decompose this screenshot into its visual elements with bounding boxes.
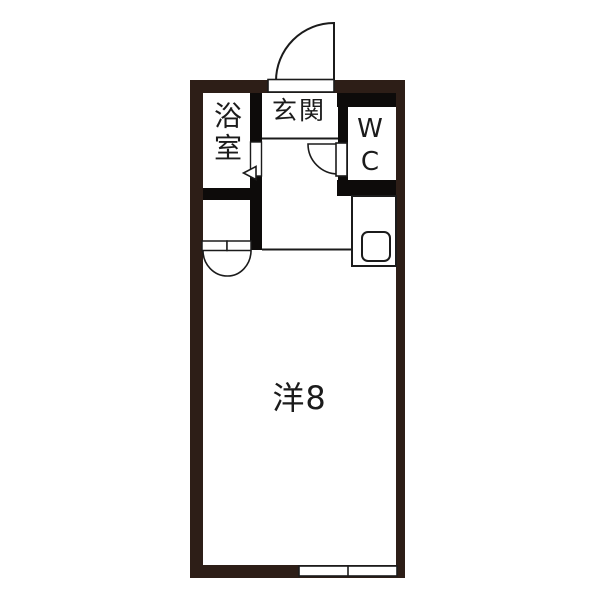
closet-wall-right xyxy=(250,200,262,250)
kitchen-sink xyxy=(362,232,390,261)
closet-door-swing-right xyxy=(228,251,252,277)
main-room-label: 洋8 xyxy=(203,382,396,414)
entrance-label: 玄関 xyxy=(260,98,338,123)
closet-door-swing-left xyxy=(203,251,228,277)
entrance-threshold xyxy=(268,80,334,93)
entrance-door-swing xyxy=(276,23,334,81)
floor-plan: 浴室 玄関 WC 洋8 xyxy=(0,0,600,600)
wc-door-swing xyxy=(308,144,338,174)
wc-door-leaf xyxy=(336,143,347,176)
wc-wall-bottom xyxy=(337,180,396,196)
floor-plan-drawing xyxy=(0,0,600,600)
bathroom-wall-bottom xyxy=(203,188,262,200)
closet-door-right xyxy=(227,241,251,251)
wc-label: WC xyxy=(357,114,383,180)
wc-wall-top xyxy=(337,93,396,107)
bathroom-door-arrow-icon xyxy=(244,167,257,180)
bathroom-label: 浴室 xyxy=(212,101,240,165)
closet-door-left xyxy=(202,241,227,251)
